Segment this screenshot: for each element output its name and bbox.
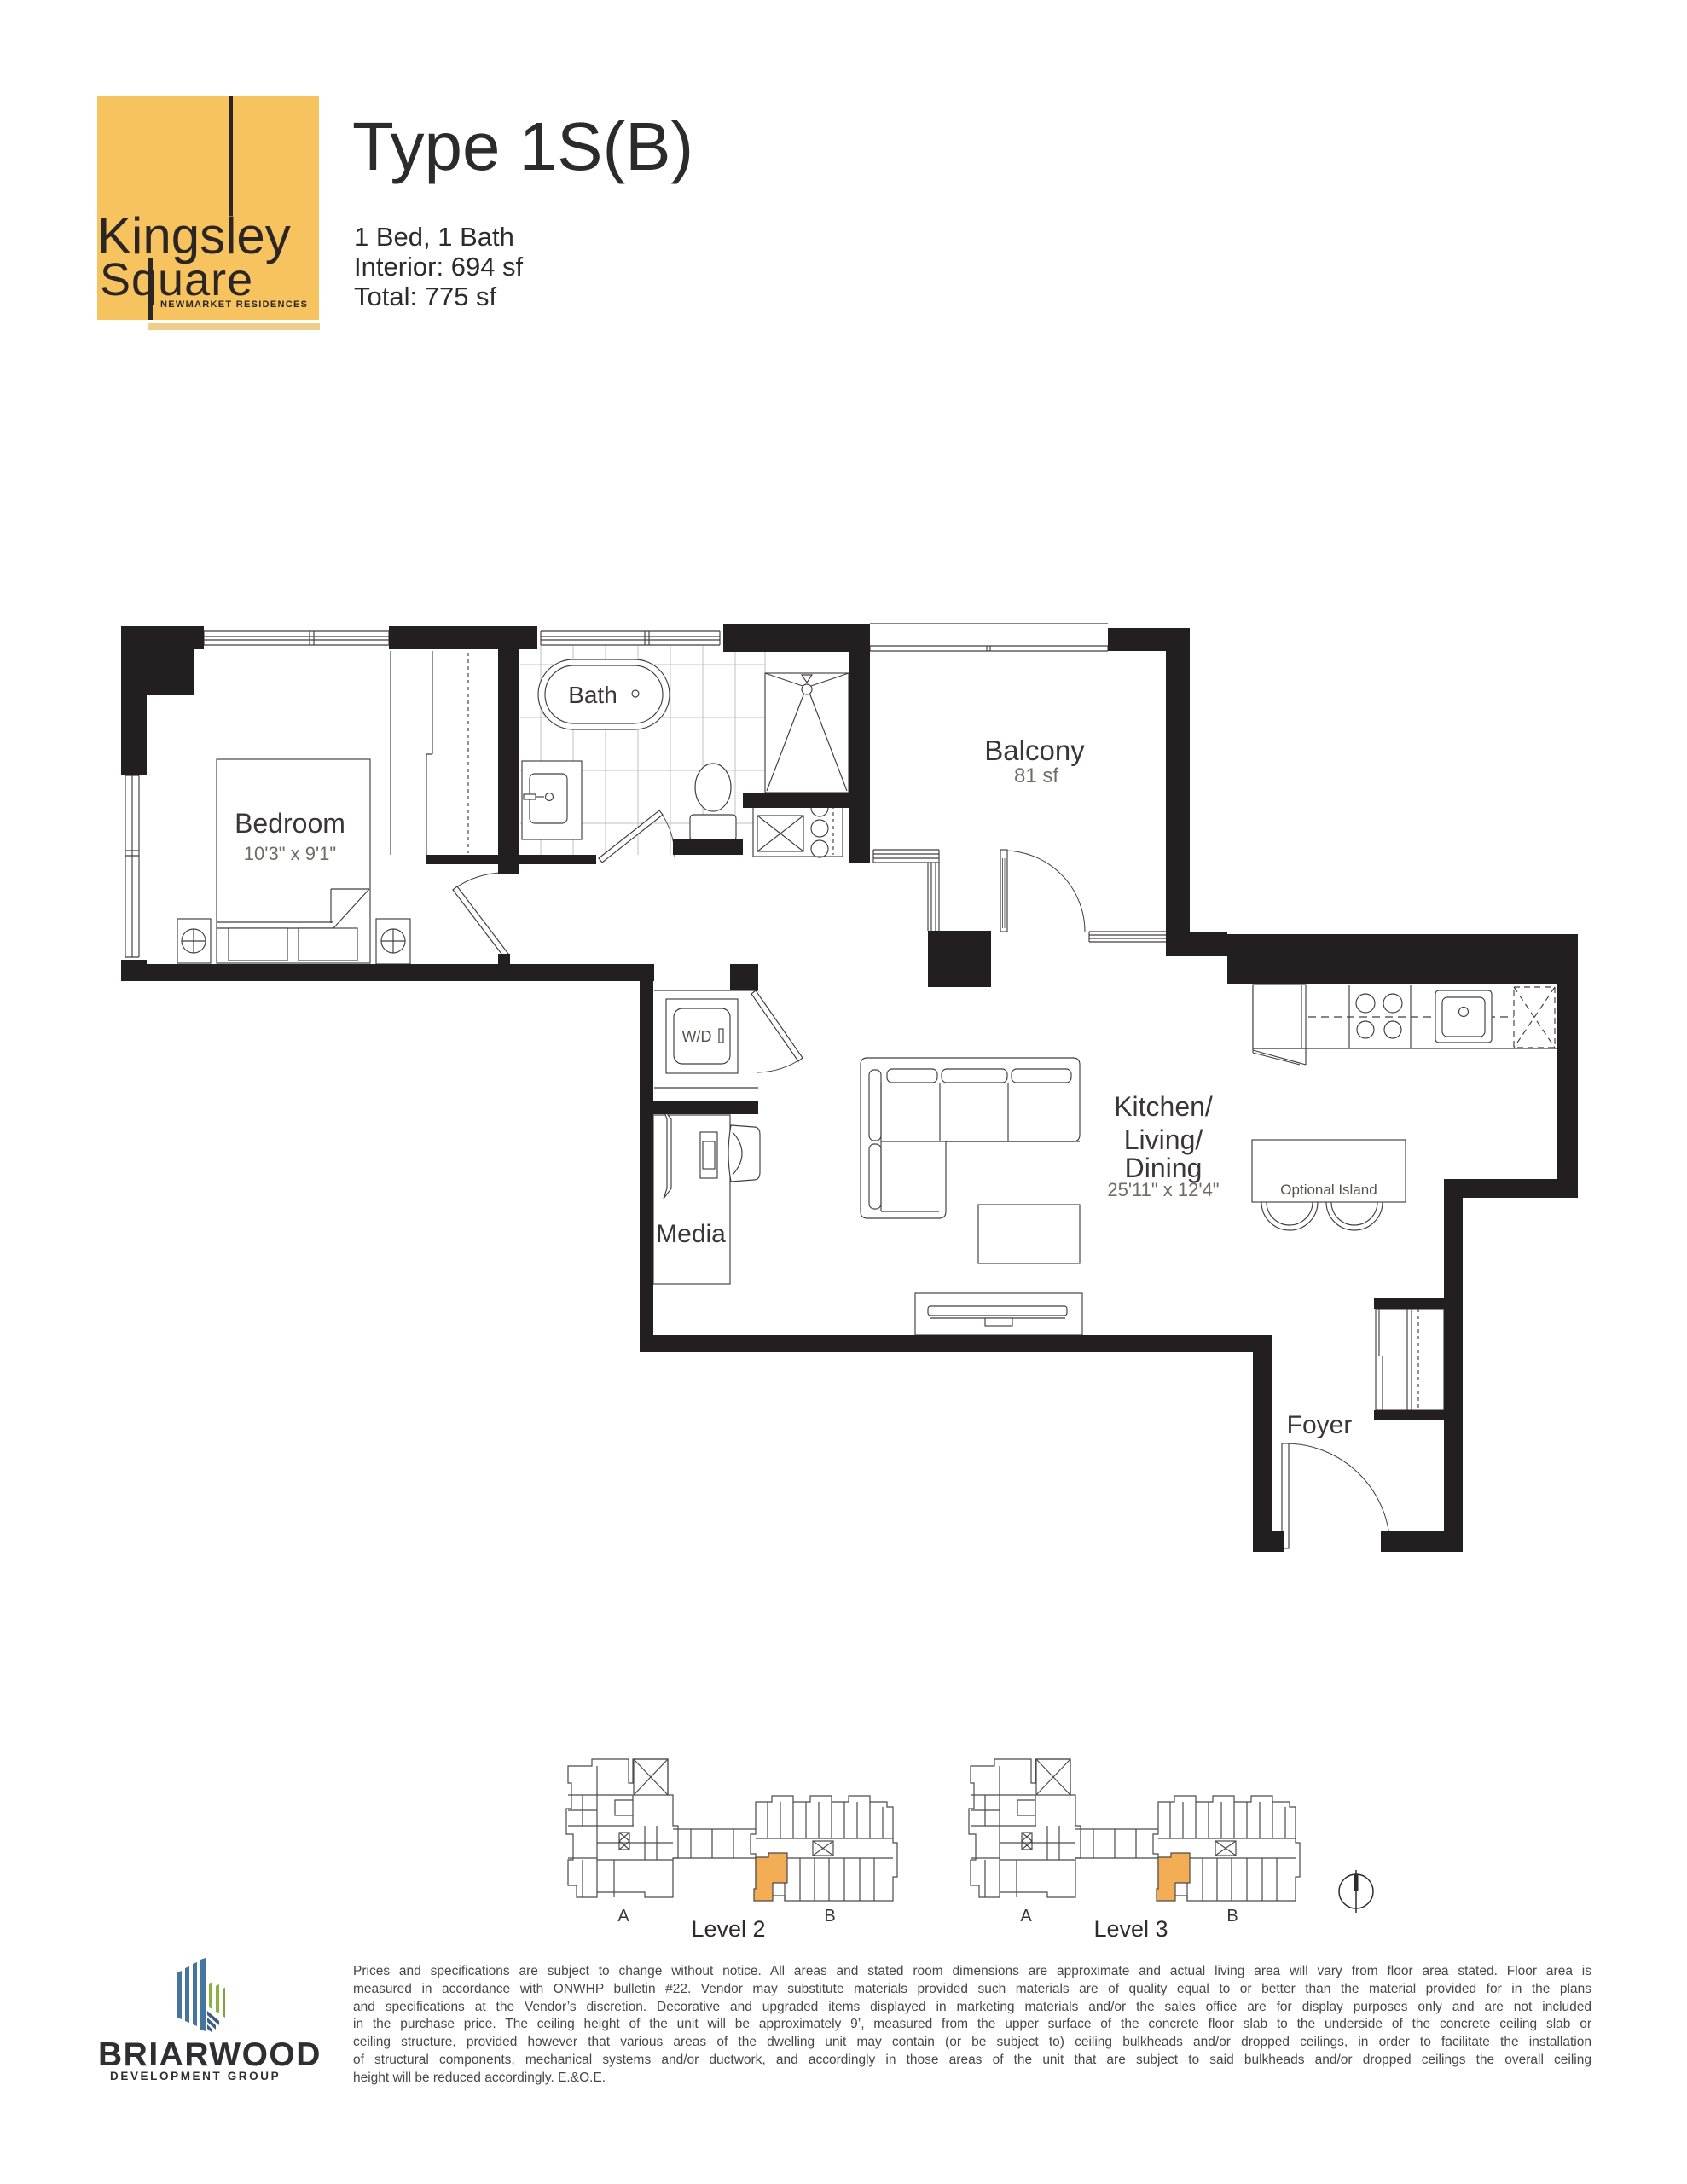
svg-text:A: A — [617, 1907, 629, 1926]
svg-text:B: B — [1226, 1907, 1238, 1926]
svg-text:Balcony: Balcony — [984, 735, 1085, 766]
svg-text:Level 3: Level 3 — [1093, 1916, 1168, 1942]
svg-text:Bedroom: Bedroom — [235, 808, 345, 839]
svg-text:W/D: W/D — [682, 1028, 712, 1045]
svg-text:Bath: Bath — [568, 682, 617, 708]
svg-text:81 sf: 81 sf — [1014, 764, 1058, 787]
svg-text:B: B — [824, 1907, 835, 1926]
svg-text:Optional Island: Optional Island — [1280, 1182, 1377, 1198]
svg-text:A: A — [1020, 1907, 1032, 1926]
svg-text:Living/: Living/ — [1124, 1124, 1203, 1155]
svg-text:Kitchen/: Kitchen/ — [1114, 1091, 1213, 1122]
svg-text:Media: Media — [656, 1220, 726, 1248]
svg-text:Level 2: Level 2 — [691, 1916, 765, 1942]
svg-text:10'3" x 9'1": 10'3" x 9'1" — [244, 843, 336, 864]
svg-text:Foyer: Foyer — [1287, 1411, 1353, 1439]
svg-text:25'11" x 12'4": 25'11" x 12'4" — [1107, 1179, 1219, 1200]
